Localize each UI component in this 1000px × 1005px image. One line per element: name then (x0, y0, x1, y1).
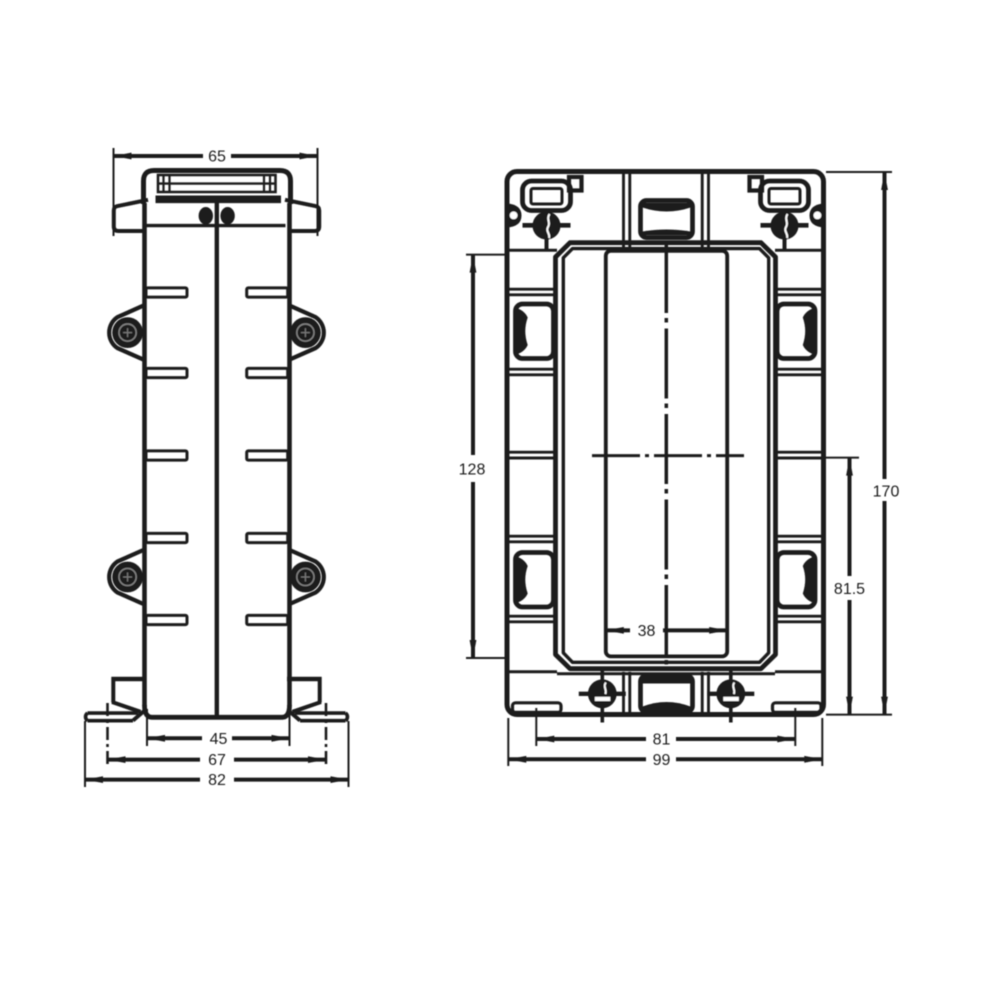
svg-text:81: 81 (653, 732, 671, 749)
svg-text:65: 65 (208, 149, 226, 166)
svg-text:45: 45 (210, 731, 228, 748)
svg-text:67: 67 (208, 752, 226, 769)
svg-text:170: 170 (873, 484, 900, 501)
svg-text:81.5: 81.5 (834, 581, 865, 598)
svg-text:128: 128 (459, 462, 486, 479)
svg-text:38: 38 (638, 623, 656, 640)
svg-text:99: 99 (653, 752, 671, 769)
svg-text:82: 82 (208, 772, 226, 789)
